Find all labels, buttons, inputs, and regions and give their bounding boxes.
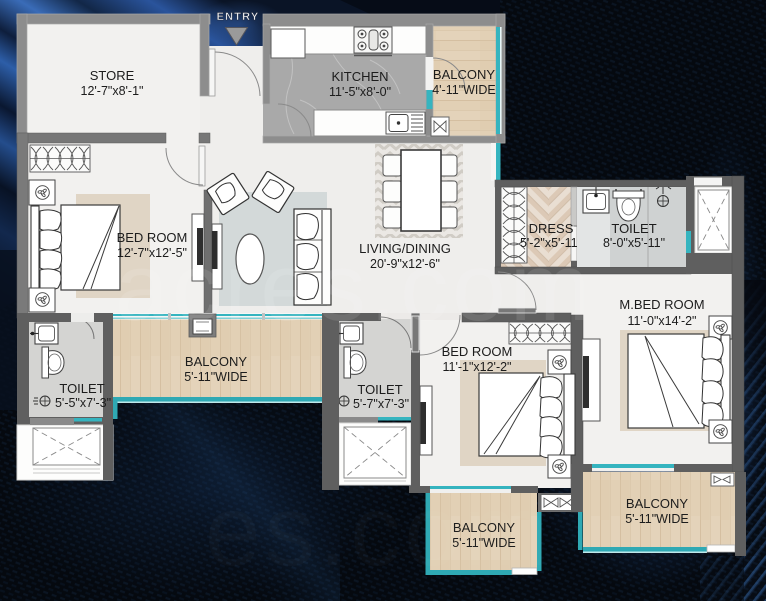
svg-text:BALCONY: BALCONY (185, 354, 247, 369)
svg-text:TOILET: TOILET (357, 382, 402, 397)
svg-text:BED ROOM: BED ROOM (442, 344, 513, 359)
svg-text:5'-7"x7'-3": 5'-7"x7'-3" (353, 397, 409, 411)
svg-text:12'-7"x8'-1": 12'-7"x8'-1" (81, 84, 144, 98)
svg-text:4'-11"WIDE: 4'-11"WIDE (432, 83, 496, 97)
svg-text:TOILET: TOILET (59, 381, 104, 396)
svg-text:BALCONY: BALCONY (433, 67, 495, 82)
svg-text:TOILET: TOILET (611, 221, 656, 236)
svg-text:ENTRY: ENTRY (217, 11, 260, 23)
svg-text:STORE: STORE (90, 68, 135, 83)
svg-text:5'-11"WIDE: 5'-11"WIDE (184, 370, 248, 384)
svg-text:5'-11"WIDE: 5'-11"WIDE (625, 512, 689, 526)
svg-text:BALCONY: BALCONY (626, 496, 688, 511)
svg-text:11'-1"x12'-2": 11'-1"x12'-2" (442, 360, 511, 374)
svg-text:11'-0"x14'-2": 11'-0"x14'-2" (627, 314, 696, 328)
svg-text:11'-5"x8'-0": 11'-5"x8'-0" (329, 85, 391, 99)
svg-text:8'-0"x5'-11": 8'-0"x5'-11" (603, 236, 665, 250)
svg-text:acres.com: acres.com (115, 234, 594, 341)
svg-text:es.com: es.com (205, 475, 551, 587)
svg-text:KITCHEN: KITCHEN (331, 69, 388, 84)
svg-text:M.BED ROOM: M.BED ROOM (619, 297, 704, 312)
svg-text:5'-5"x7'-3": 5'-5"x7'-3" (55, 396, 111, 410)
